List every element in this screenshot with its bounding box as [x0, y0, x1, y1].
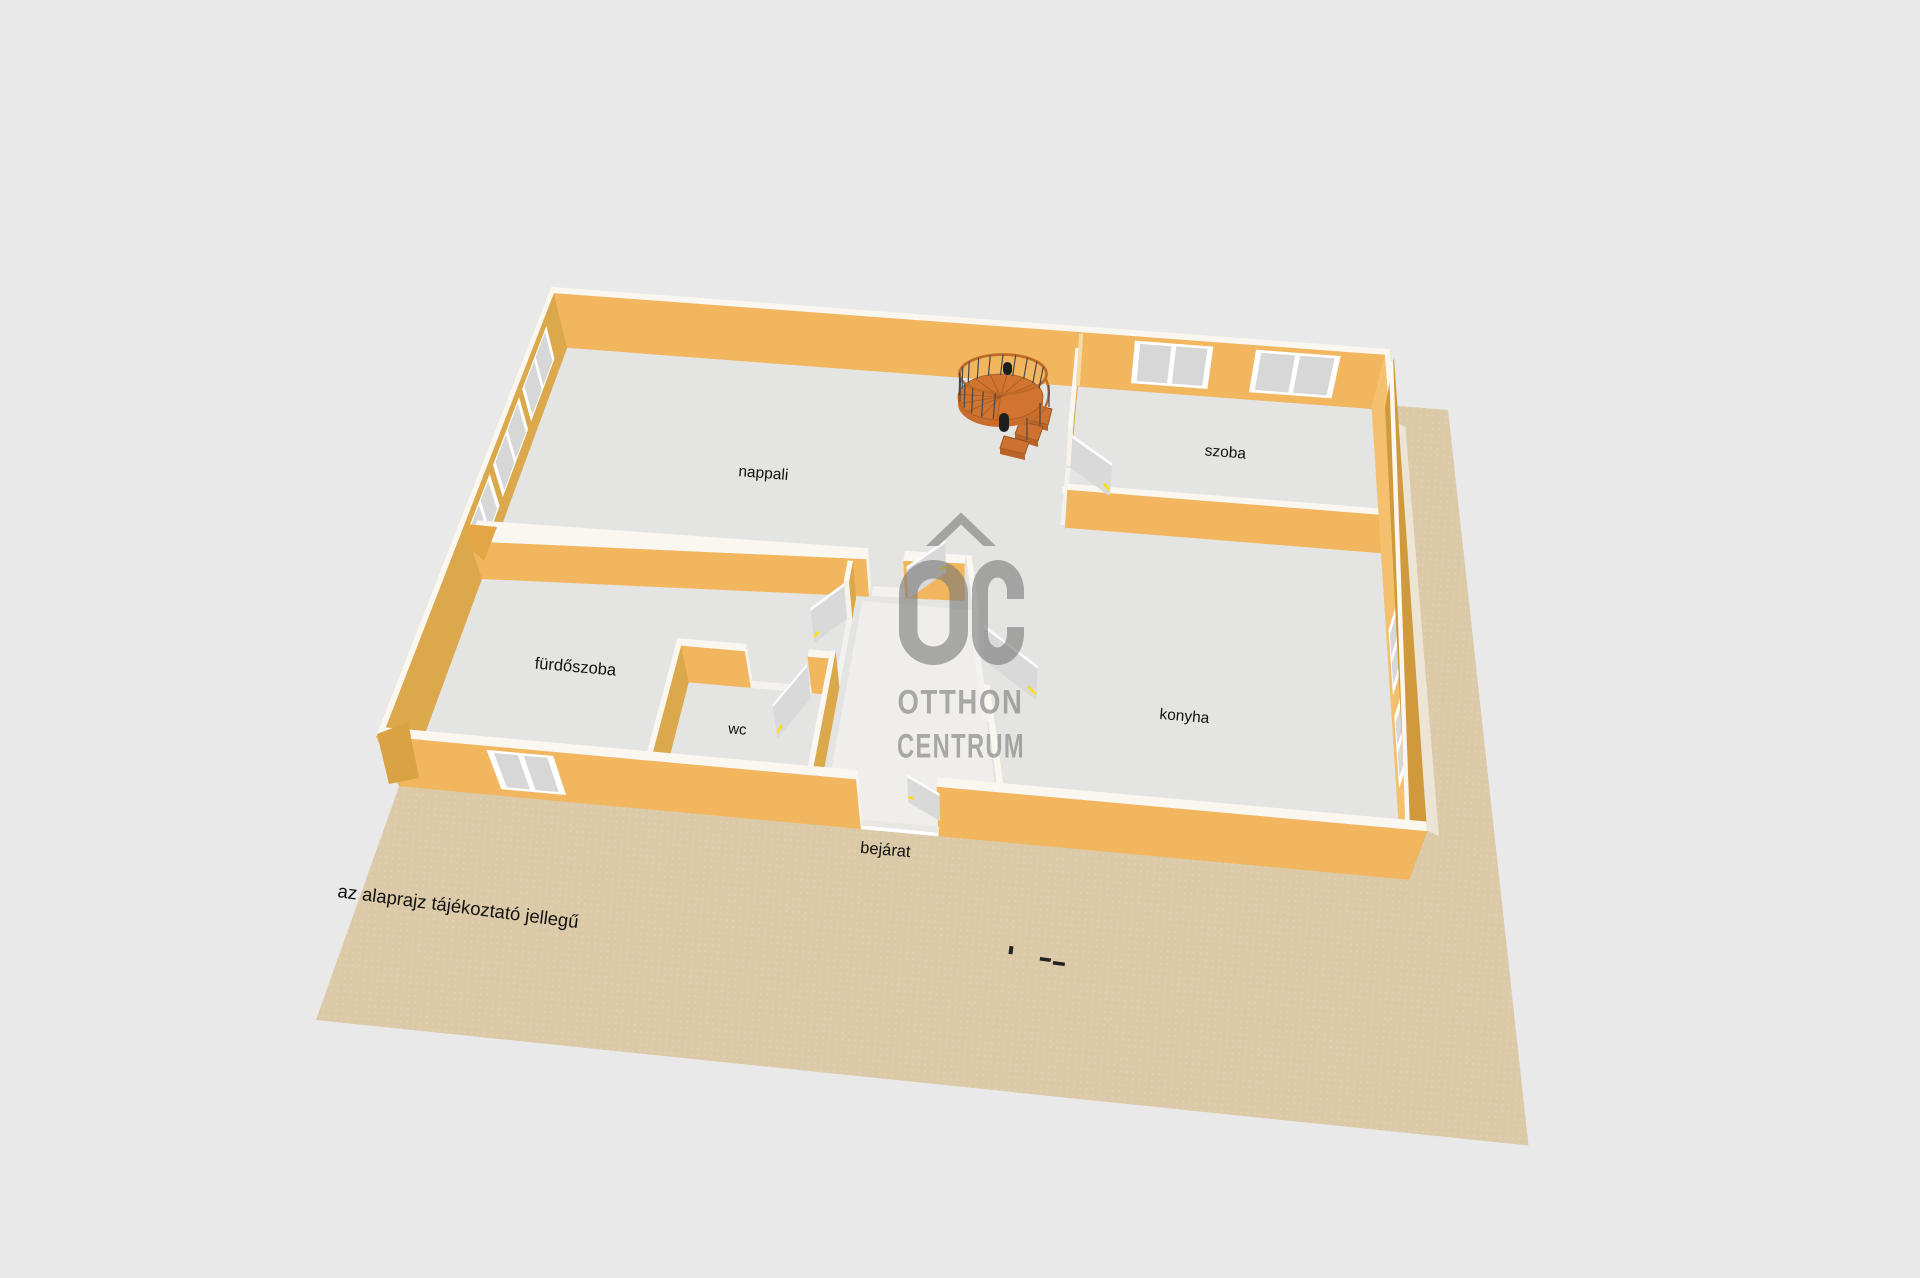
- svg-text:OTTHON: OTTHON: [898, 684, 1024, 722]
- svg-text:szoba: szoba: [1204, 442, 1247, 462]
- svg-text:CENTRUM: CENTRUM: [897, 728, 1025, 766]
- svg-text:wc: wc: [727, 720, 748, 739]
